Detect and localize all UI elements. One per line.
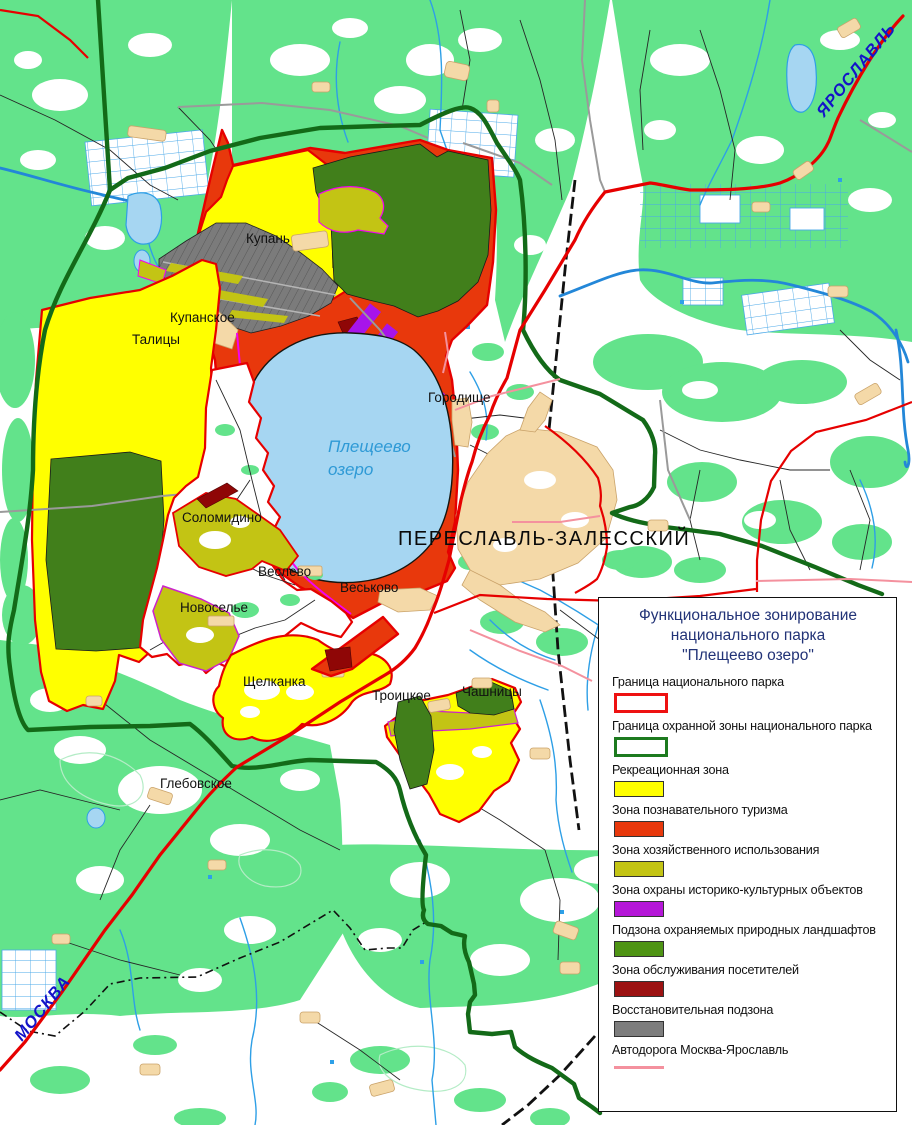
label-shchelkanka: Щелканка: [243, 674, 306, 689]
legend-panel: Функциональное зонирование национального…: [598, 597, 897, 1112]
map-screenshot: Купань Купанское Талицы Городище Соломид…: [0, 0, 912, 1125]
label-chashnitsy: Чашницы: [462, 684, 522, 699]
legend-swatch-park-boundary: [614, 693, 668, 713]
label-kupanskoe: Купанское: [170, 310, 235, 325]
legend-item-park-boundary: Граница национального парка: [612, 675, 884, 713]
legend-item-recreation: Рекреационная зона: [612, 763, 884, 797]
legend-swatch-landscape: [614, 941, 664, 957]
label-kupan: Купань: [246, 231, 290, 246]
small-lake-northwest: [126, 193, 162, 244]
legend-swatch-restoration: [614, 1021, 664, 1037]
legend-swatch-economic: [614, 861, 664, 877]
zone-olive-northeast: [319, 187, 388, 234]
label-veslevo: Веслево: [258, 564, 311, 579]
legend-item-heritage: Зона охраны историко-культурных объектов: [612, 883, 884, 917]
label-lake-line1: Плещеево: [328, 437, 411, 456]
label-lake-line2: озеро: [328, 460, 373, 479]
label-solomidino: Соломидино: [182, 510, 262, 525]
label-veskovo: Веськово: [340, 580, 398, 595]
zone-darkred-triangle: [325, 647, 352, 671]
legend-swatch-service: [614, 981, 664, 997]
label-troitskoe: Троицкое: [372, 688, 431, 703]
legend-item-restoration: Восстановительная подзона: [612, 1003, 884, 1037]
legend-swatch-recreation: [614, 781, 664, 797]
village-novoselye-area: [208, 616, 234, 626]
small-lake-northeast: [787, 44, 817, 112]
legend-item-landscape: Подзона охраняемых природных ландшафтов: [612, 923, 884, 957]
legend-title: Функциональное зонирование национального…: [612, 606, 884, 666]
legend-swatch-heritage: [614, 901, 664, 917]
label-talitsy: Талицы: [132, 332, 180, 347]
legend-item-tourism: Зона познавательного туризма: [612, 803, 884, 837]
label-glebovskoe: Глебовское: [160, 776, 232, 791]
legend-swatch-tourism: [614, 821, 664, 837]
legend-item-service: Зона обслуживания посетителей: [612, 963, 884, 997]
legend-item-highway: Автодорога Москва-Ярославль: [612, 1043, 884, 1069]
legend-swatch-buffer-boundary: [614, 737, 668, 757]
label-gorodishche: Городище: [428, 390, 491, 405]
legend-item-buffer-boundary: Граница охранной зоны национального парк…: [612, 719, 884, 757]
label-city-pereslavl: ПЕРЕСЛАВЛЬ-ЗАЛЕССКИЙ: [398, 526, 690, 550]
legend-item-economic: Зона хозяйственного использования: [612, 843, 884, 877]
legend-swatch-highway: [614, 1066, 664, 1069]
label-novoselye: Новоселье: [180, 600, 248, 615]
